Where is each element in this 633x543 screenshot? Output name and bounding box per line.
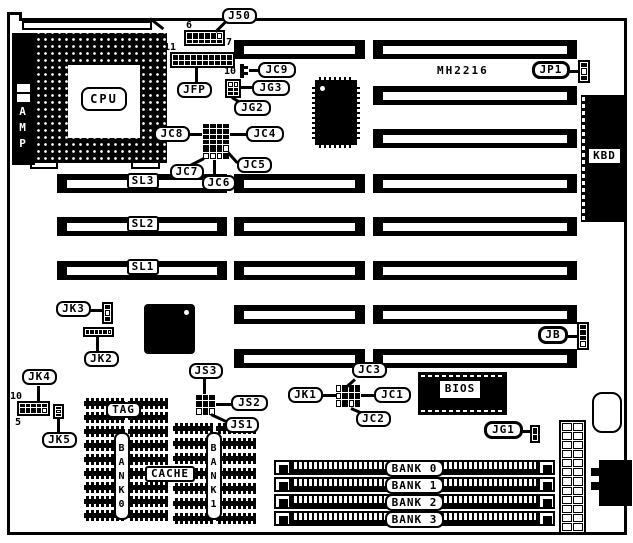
cpu-label: CPU: [81, 87, 127, 111]
slot-label-sl3: SL3: [127, 173, 159, 189]
leader-jk5: [57, 419, 60, 433]
callout-jk5: JK5: [42, 432, 77, 448]
jc8-jumper-block: [202, 123, 230, 160]
callout-jg3: JG3: [252, 80, 290, 96]
leader-jk4: [37, 386, 40, 402]
js-jumper-block: [195, 394, 216, 416]
mounting-hole: [592, 392, 622, 433]
pin1-dot: [320, 86, 325, 91]
motherboard-diagram: CPU AMP SL3 SL2 SL1 MH2216: [0, 0, 633, 543]
isa-slot-right: [373, 349, 577, 368]
pin-label-jc9-10: 10: [224, 67, 236, 77]
leader-jfp: [195, 68, 198, 83]
simm-latch: [538, 460, 555, 475]
isa-slot-mid: [234, 40, 365, 59]
callout-jg2: JG2: [234, 100, 271, 116]
leader-jc6: [213, 160, 216, 176]
callout-jk4: JK4: [22, 369, 57, 385]
qfp-pins: [319, 77, 353, 80]
callout-jc6: JC6: [202, 175, 236, 191]
leader-jk2: [96, 337, 99, 352]
leader-jc8: [189, 133, 202, 136]
j50-header: [184, 30, 225, 46]
jk5-jumper: [53, 404, 64, 419]
bank0-label: BANK 0: [385, 460, 444, 477]
leader-jc1: [361, 394, 374, 397]
simm-latch: [538, 494, 555, 509]
simm-latch: [274, 494, 291, 509]
jg3-jg2-header: [225, 79, 241, 98]
leader-jk1: [322, 394, 336, 397]
jk3-jumper: [102, 302, 113, 324]
cache-label: CACHE: [145, 466, 195, 482]
callout-jc9: JC9: [258, 62, 296, 78]
simm-latch: [274, 477, 291, 492]
pin-label-jfp-11: 11: [164, 43, 176, 53]
isa-slot-right: [373, 261, 577, 280]
pin-label-j50-6: 6: [186, 21, 192, 31]
edge-slot-bar: [22, 21, 152, 30]
callout-jc3: JC3: [352, 362, 387, 378]
callout-jk1: JK1: [288, 387, 323, 403]
cpu-socket-inner: CPU: [68, 65, 140, 138]
callout-jk2: JK2: [84, 351, 119, 367]
simm-latch: [538, 477, 555, 492]
callout-jc8: JC8: [154, 126, 190, 142]
simm-latch: [274, 460, 291, 475]
simm-latch: [538, 511, 555, 526]
callout-js2: JS2: [231, 395, 268, 411]
isa-slot-mid: [234, 217, 365, 236]
leader-jp1: [569, 70, 579, 73]
qfp-pins: [312, 86, 315, 139]
callout-jc7: JC7: [170, 164, 204, 180]
callout-jc2: JC2: [356, 411, 391, 427]
din-tab: [591, 482, 599, 490]
jk4-header: [17, 401, 50, 416]
leader-js3: [203, 379, 206, 394]
isa-slot-right: [373, 129, 577, 148]
pin-label-j50-7: 7: [226, 38, 232, 48]
isa-slot-mid: [234, 261, 365, 280]
jk2-header: [83, 327, 114, 337]
callout-jc4: JC4: [246, 126, 284, 142]
amp-block: [17, 94, 30, 102]
jg1-jumper: [530, 425, 540, 443]
isa-slot-right: [373, 40, 577, 59]
amp-block: [17, 84, 30, 92]
callout-jfp: JFP: [177, 82, 212, 98]
bios-chip: BIOS: [418, 372, 507, 415]
slot-label-sl1: SL1: [127, 259, 159, 275]
isa-slot-mid: [234, 305, 365, 324]
leader-js2: [216, 403, 232, 406]
jp1-connector: [578, 60, 590, 83]
tag-label: TAG: [106, 402, 141, 418]
qfp-chip-top: [315, 80, 357, 145]
jc-jumper-block: [335, 384, 361, 408]
board-model-text: MH2216: [437, 64, 489, 77]
qfp-pins: [319, 145, 353, 148]
callout-js1: JS1: [225, 417, 259, 433]
din-tab: [591, 468, 599, 476]
callout-j50: J50: [222, 8, 257, 24]
amp-regulator: AMP: [12, 33, 35, 165]
isa-slot-right: [373, 217, 577, 236]
isa-slot-right: [373, 174, 577, 193]
callout-jc1: JC1: [374, 387, 411, 403]
callout-jb: JB: [538, 326, 568, 344]
bank2-label: BANK 2: [385, 494, 444, 511]
cpu-socket: CPU: [32, 33, 167, 163]
pin-label-jk4-5: 5: [15, 418, 21, 428]
bank3-label: BANK 3: [385, 511, 444, 528]
power-connector: [559, 420, 586, 534]
board-edge-tab: [7, 12, 22, 21]
cache-bank0-label: BANK0: [114, 432, 130, 520]
bank1-label: BANK 1: [385, 477, 444, 494]
kbd-label: KBD: [588, 148, 621, 164]
callout-js3: JS3: [189, 363, 223, 379]
slot-label-sl2: SL2: [127, 216, 159, 232]
simm-latch: [274, 511, 291, 526]
isa-slot-right: [373, 86, 577, 105]
isa-slot-right: [373, 305, 577, 324]
pin-label-jk4-10: 10: [10, 392, 22, 402]
callout-jg1: JG1: [484, 421, 523, 439]
pin1-dot: [184, 310, 189, 315]
chipset-chip: [144, 304, 195, 354]
kbd-pins: [582, 97, 585, 220]
jc9-pin: [244, 72, 248, 75]
cache-bank1-label: BANK1: [206, 432, 222, 520]
isa-slot-mid: [234, 349, 365, 368]
callout-jk3: JK3: [56, 301, 91, 317]
jb-connector: [577, 322, 589, 350]
isa-slot-mid: [234, 174, 365, 193]
callout-jc5: JC5: [237, 157, 272, 173]
leader-jc4: [230, 133, 247, 136]
bios-label: BIOS: [440, 381, 480, 398]
qfp-pins: [357, 86, 360, 139]
jc9-pin: [244, 66, 248, 69]
amp-label: AMP: [16, 105, 29, 153]
callout-jp1: JP1: [532, 61, 570, 79]
keyboard-din-connector: [599, 460, 632, 506]
kbd-controller: KBD: [581, 95, 626, 222]
